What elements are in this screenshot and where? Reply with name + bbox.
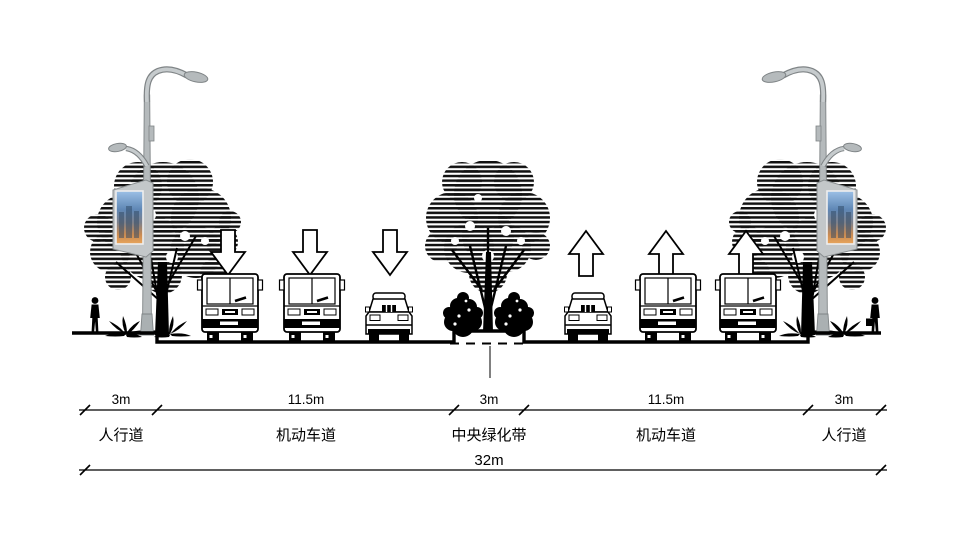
briefcase xyxy=(866,319,873,327)
bus-right-1 xyxy=(636,274,701,341)
traffic-arrow-up-2 xyxy=(649,231,683,276)
car-left xyxy=(366,293,413,341)
traffic-arrow-down-2 xyxy=(293,230,327,275)
width-label-1: 11.5m xyxy=(288,392,325,407)
segment-name-2: 中央绿化带 xyxy=(451,427,526,444)
road-cross-section-diagram: 3m 11.5m 3m 11.5m 3m 人行道 机动车道 中央绿化带 机动车道… xyxy=(0,0,960,540)
segment-name-0: 人行道 xyxy=(98,427,143,444)
segment-name-4: 人行道 xyxy=(821,427,866,444)
segment-name-1: 机动车道 xyxy=(276,427,336,444)
traffic-arrow-up-1 xyxy=(569,231,603,276)
width-label-4: 3m xyxy=(835,392,854,407)
bus-left-2 xyxy=(280,274,345,341)
traffic-arrow-down-3 xyxy=(373,230,407,275)
median-tree xyxy=(425,160,550,332)
width-label-3: 11.5m xyxy=(648,392,685,407)
car-right xyxy=(565,293,612,341)
width-label-2: 3m xyxy=(480,392,499,407)
total-width-label: 32m xyxy=(474,452,503,469)
road-cross-section-canvas: 3m 11.5m 3m 11.5m 3m 人行道 机动车道 中央绿化带 机动车道… xyxy=(0,0,960,540)
width-label-0: 3m xyxy=(112,392,131,407)
segment-name-3: 机动车道 xyxy=(636,427,696,444)
bus-left-1 xyxy=(198,274,263,341)
bus-right-2 xyxy=(716,274,781,341)
